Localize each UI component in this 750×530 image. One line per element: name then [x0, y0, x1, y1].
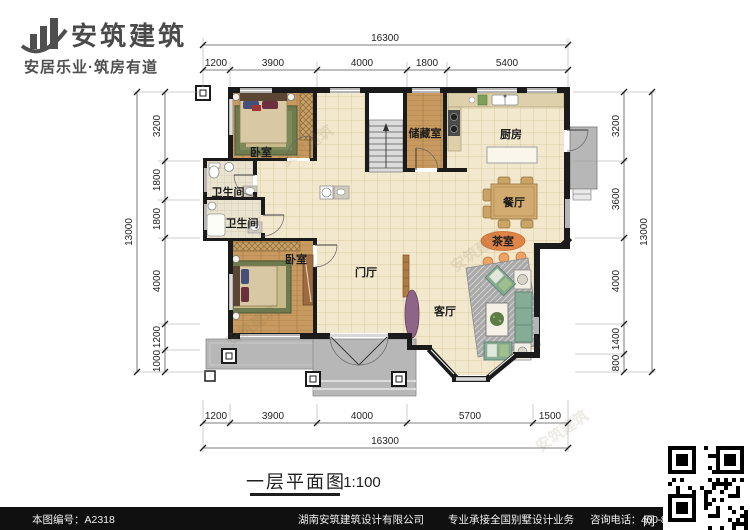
title-underline [250, 493, 340, 496]
plan-scale: 1:100 [343, 474, 381, 491]
dim-top-seg: 3900 [262, 58, 285, 69]
dim-bottom-total: 16300 [371, 436, 399, 447]
dim-bottom-seg: 4000 [351, 411, 374, 422]
net-label: 网 [643, 512, 655, 529]
company-name: 湖南安筑建筑设计有限公司 [298, 512, 424, 527]
dim-bottom-seg: 1200 [205, 411, 228, 422]
dim-top-total: 16300 [371, 33, 399, 44]
dim-top-seg: 5400 [496, 58, 519, 69]
title-block: 一层平面图 1:100 [246, 472, 381, 496]
brand-slogan: 安居乐业·筑房有道 [24, 56, 158, 77]
dim-top-seg: 1800 [416, 58, 439, 69]
dim-top-seg: 4000 [351, 58, 374, 69]
dim-left-seg: 1800 [152, 168, 163, 191]
label-dining: 餐厅 [502, 195, 525, 209]
dim-left-seg: 4000 [152, 269, 163, 292]
dim-bottom-seg: 3900 [262, 411, 285, 422]
label-bath-lower: 卫生间 [226, 216, 259, 230]
qr-code [663, 438, 750, 530]
label-bath-upper: 卫生间 [212, 185, 245, 199]
drawing-sheet: 卧室 储藏室 厨房 卫生间 卫生间 餐厅 茶室 卧室 门厅 客厅 安筑建筑 安筑… [0, 0, 750, 530]
label-storage: 储藏室 [409, 126, 442, 140]
dim-right-seg: 3600 [611, 187, 622, 210]
label-living: 客厅 [433, 304, 456, 318]
label-foyer: 门厅 [355, 265, 377, 279]
company-logo-icon [18, 12, 70, 58]
header: 安筑建筑 安居乐业·筑房有道 [0, 0, 260, 85]
dim-right-seg: 4000 [611, 269, 622, 292]
dim-bottom-seg: 5700 [459, 411, 482, 422]
plan-title: 一层平面图 [246, 472, 346, 492]
dim-left-seg: 3200 [152, 114, 163, 137]
entrance-sill [330, 334, 388, 337]
sheet-number: 本图编号：A2318 [32, 512, 115, 527]
dim-left-seg: 1800 [152, 207, 163, 230]
business-scope: 专业承接全国别墅设计业务 [448, 512, 574, 527]
label-kitchen: 厨房 [500, 127, 522, 141]
dim-right-total: 13000 [639, 218, 650, 246]
dim-left-total: 13000 [124, 218, 135, 246]
brand-name: 安筑建筑 [71, 16, 187, 53]
label-bedroom-bottom: 卧室 [285, 252, 307, 266]
staircase [369, 120, 403, 172]
dim-right-seg: 800 [611, 354, 622, 371]
dim-left-seg: 1000 [152, 349, 163, 372]
dim-right-seg: 3200 [611, 114, 622, 137]
living-room-set [466, 258, 540, 360]
dim-bottom-seg: 1500 [539, 411, 562, 422]
dim-left-seg: 1200 [152, 325, 163, 348]
label-bedroom-top: 卧室 [250, 145, 272, 159]
dim-right-seg: 1400 [611, 327, 622, 350]
footer-bar: 本图编号：A2318 湖南安筑建筑设计有限公司 专业承接全国别墅设计业务 咨询电… [0, 507, 750, 530]
